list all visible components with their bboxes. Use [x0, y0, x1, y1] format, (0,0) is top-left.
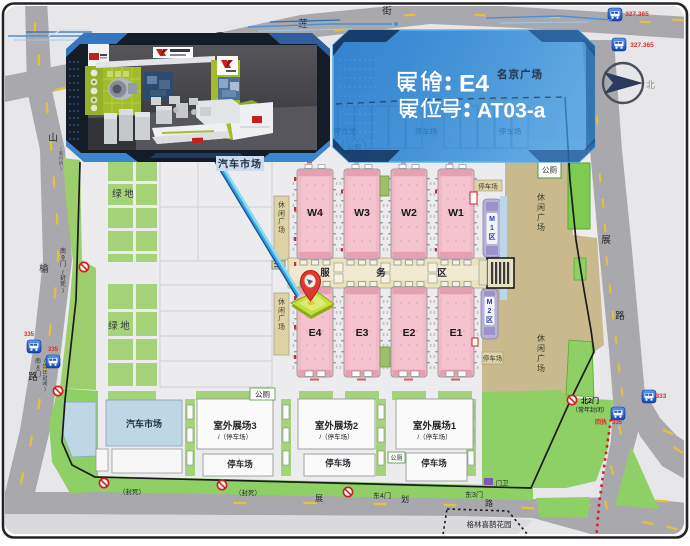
svg-text:务: 务 [376, 267, 386, 279]
svg-text:区: 区 [437, 268, 447, 279]
svg-text:W4: W4 [307, 207, 323, 219]
svg-text:停车场: 停车场 [421, 458, 447, 468]
svg-text:南: 南 [35, 357, 41, 365]
svg-text:E3: E3 [356, 327, 369, 339]
svg-text:E4: E4 [309, 327, 322, 339]
svg-text:室外展场3: 室外展场3 [213, 420, 256, 432]
svg-text:E1: E1 [450, 327, 463, 339]
svg-text:展: 展 [601, 235, 611, 246]
svg-text:（封死）: （封死） [235, 488, 261, 497]
svg-text:): ) [62, 288, 64, 294]
svg-text:广: 广 [278, 314, 285, 323]
svg-text:/（停车场）: /（停车场） [417, 432, 451, 441]
svg-text:M: M [487, 299, 493, 306]
svg-text:/（停车场）: /（停车场） [218, 432, 252, 441]
svg-text:公厕: 公厕 [542, 166, 557, 175]
svg-text:闲: 闲 [537, 203, 545, 212]
svg-text:划: 划 [401, 494, 409, 504]
svg-text:休: 休 [278, 297, 285, 306]
svg-text:停车场: 停车场 [227, 459, 253, 469]
svg-text:（常年封闭）: （常年封闭） [572, 406, 608, 414]
svg-text:327.365: 327.365 [625, 11, 649, 18]
svg-text:停车场: 停车场 [483, 354, 503, 363]
svg-text:东3门: 东3门 [465, 490, 483, 499]
svg-text:E2: E2 [403, 327, 416, 339]
svg-text:室外展场2: 室外展场2 [315, 420, 358, 432]
svg-text:休: 休 [537, 192, 545, 202]
svg-text:门: 门 [60, 260, 66, 268]
svg-text:北2门: 北2门 [581, 396, 599, 405]
svg-text:门卫: 门卫 [496, 478, 510, 487]
svg-text:场: 场 [278, 322, 285, 331]
svg-text:街: 街 [382, 5, 392, 17]
svg-text:停车场: 停车场 [478, 182, 498, 191]
svg-text:335: 335 [48, 347, 59, 353]
svg-text:停车场: 停车场 [325, 458, 351, 468]
svg-text:公厕: 公厕 [255, 390, 270, 399]
svg-text:E4: E4 [459, 71, 489, 98]
svg-text:区: 区 [489, 233, 496, 241]
svg-text:场: 场 [537, 364, 545, 373]
svg-text:327.365: 327.365 [630, 42, 654, 49]
svg-text:路: 路 [615, 310, 625, 322]
svg-text:公厕: 公厕 [390, 455, 402, 462]
svg-text:莲: 莲 [298, 18, 308, 30]
svg-text:展: 展 [315, 494, 323, 503]
svg-text:（封死）: （封死） [119, 487, 145, 496]
svg-text:休: 休 [537, 333, 545, 343]
svg-text:AT03-a: AT03-a [477, 100, 546, 123]
svg-text:M: M [489, 216, 495, 223]
svg-text:南: 南 [60, 247, 66, 255]
svg-text:室外展场1: 室外展场1 [413, 420, 457, 432]
svg-text:广: 广 [537, 212, 545, 222]
svg-text:1: 1 [490, 225, 494, 232]
svg-text:闲: 闲 [278, 305, 285, 314]
svg-text:广: 广 [278, 217, 285, 226]
svg-text:东4门: 东4门 [373, 491, 391, 500]
svg-text:北: 北 [646, 80, 655, 90]
svg-text:汽车市场: 汽车市场 [126, 418, 162, 429]
svg-text:死: 死 [60, 281, 66, 288]
svg-text:区: 区 [486, 316, 493, 324]
svg-text:名京广场: 名京广场 [497, 68, 543, 81]
svg-text:/（停车场）: /（停车场） [319, 432, 353, 441]
svg-text:汽车市场: 汽车市场 [218, 158, 262, 171]
svg-text:绿 地: 绿 地 [112, 188, 134, 200]
svg-text:335: 335 [24, 332, 35, 338]
svg-text:格林喜鹊花园: 格林喜鹊花园 [467, 519, 512, 529]
svg-text:场: 场 [537, 223, 545, 232]
svg-text:闲: 闲 [278, 208, 285, 217]
svg-text:封: 封 [60, 274, 66, 282]
svg-text:门: 门 [35, 370, 41, 378]
svg-text:2: 2 [488, 308, 492, 315]
svg-text:回执: 回执 [595, 418, 607, 426]
svg-text:场: 场 [278, 225, 285, 234]
svg-text:335: 335 [612, 420, 623, 426]
svg-text:333: 333 [656, 393, 667, 400]
svg-text:山: 山 [48, 133, 58, 144]
svg-text:闲: 闲 [537, 344, 545, 353]
svg-text:榆: 榆 [39, 263, 49, 275]
svg-text:W2: W2 [401, 207, 417, 219]
svg-text:休: 休 [278, 200, 285, 209]
svg-text:服: 服 [320, 268, 330, 279]
svg-text:W3: W3 [354, 207, 370, 219]
svg-text:绿 地: 绿 地 [108, 320, 130, 332]
svg-text:W1: W1 [448, 207, 464, 219]
svg-text:广: 广 [537, 353, 545, 363]
svg-text:路: 路 [485, 498, 493, 508]
